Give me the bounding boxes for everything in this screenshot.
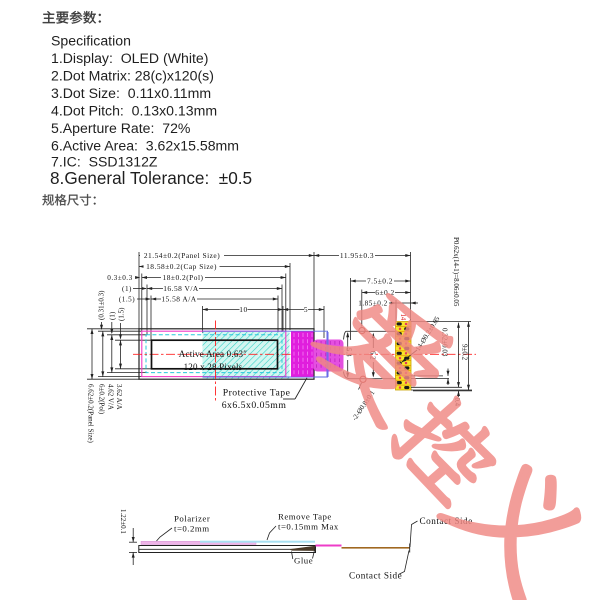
svg-text:120 x 28 Pixels: 120 x 28 Pixels xyxy=(184,362,243,372)
svg-text:18.58±0.2(Cap Size): 18.58±0.2(Cap Size) xyxy=(146,262,217,271)
svg-text:5.Aperture Rate: 72%: 5.Aperture Rate: 72% xyxy=(51,120,191,136)
svg-text:1.22±0.1: 1.22±0.1 xyxy=(119,509,127,534)
svg-text:6±0.2(Pol): 6±0.2(Pol) xyxy=(98,384,106,415)
svg-text:14: 14 xyxy=(399,314,406,321)
svg-text:11.95±0.3: 11.95±0.3 xyxy=(340,251,374,260)
svg-text:5: 5 xyxy=(304,305,308,314)
svg-text:4.Dot Pitch: 0.13x0.13mm: 4.Dot Pitch: 0.13x0.13mm xyxy=(51,102,217,118)
svg-text:18±0.2(Pol): 18±0.2(Pol) xyxy=(163,273,204,282)
svg-text:1.85±0.2: 1.85±0.2 xyxy=(358,300,388,308)
svg-text:9±0.2: 9±0.2 xyxy=(461,344,469,361)
svg-text:(1): (1) xyxy=(109,311,117,320)
svg-text:4.62 V/A: 4.62 V/A xyxy=(107,384,115,410)
svg-text:6x6.5x0.05mm: 6x6.5x0.05mm xyxy=(222,400,287,411)
svg-text:15.58 A/A: 15.58 A/A xyxy=(161,295,196,304)
svg-text:Protective Tape: Protective Tape xyxy=(223,388,291,399)
svg-text:Glue: Glue xyxy=(294,556,313,566)
svg-text:7.5±0.2: 7.5±0.2 xyxy=(367,277,393,286)
svg-text:8.General Tolerance: ±0.5: 8.General Tolerance: ±0.5 xyxy=(50,168,252,188)
svg-text:21.54±0.2(Panel Size): 21.54±0.2(Panel Size) xyxy=(144,251,220,260)
svg-text:2.Dot Matrix: 28(c)x120(s): 2.Dot Matrix: 28(c)x120(s) xyxy=(51,67,214,83)
svg-text:(1): (1) xyxy=(122,285,132,293)
svg-text:1.Display: OLED (White): 1.Display: OLED (White) xyxy=(51,50,208,66)
svg-text:t=0.15mm Max: t=0.15mm Max xyxy=(278,522,339,532)
svg-text:3.Dot Size: 0.11x0.11mm: 3.Dot Size: 0.11x0.11mm xyxy=(51,85,211,101)
svg-text:P0.62x(14-1)=8.06±0.05: P0.62x(14-1)=8.06±0.05 xyxy=(452,237,460,307)
svg-text:(1.5): (1.5) xyxy=(118,307,126,321)
svg-text:(1.5): (1.5) xyxy=(119,296,135,304)
svg-text:6.Active Area: 3.62x15.58mm: 6.Active Area: 3.62x15.58mm xyxy=(51,137,239,153)
svg-text:Contact Side: Contact Side xyxy=(349,571,402,581)
svg-text:Specification: Specification xyxy=(51,32,131,48)
svg-text:16.58 V/A: 16.58 V/A xyxy=(163,284,199,293)
svg-text:Polarizer: Polarizer xyxy=(174,514,210,524)
svg-text:10: 10 xyxy=(239,305,247,314)
svg-text:(0.31±0.3): (0.31±0.3) xyxy=(98,290,106,320)
svg-text:3.62 A/A: 3.62 A/A xyxy=(115,384,123,410)
svg-text:Active Area 0.63″: Active Area 0.63″ xyxy=(179,349,247,359)
svg-text:0.3±0.3: 0.3±0.3 xyxy=(107,274,132,282)
svg-text:6.62±0.2(Panel Size): 6.62±0.2(Panel Size) xyxy=(87,384,95,444)
svg-text:t=0.2mm: t=0.2mm xyxy=(174,524,210,534)
svg-text:Remove Tape: Remove Tape xyxy=(278,512,332,522)
